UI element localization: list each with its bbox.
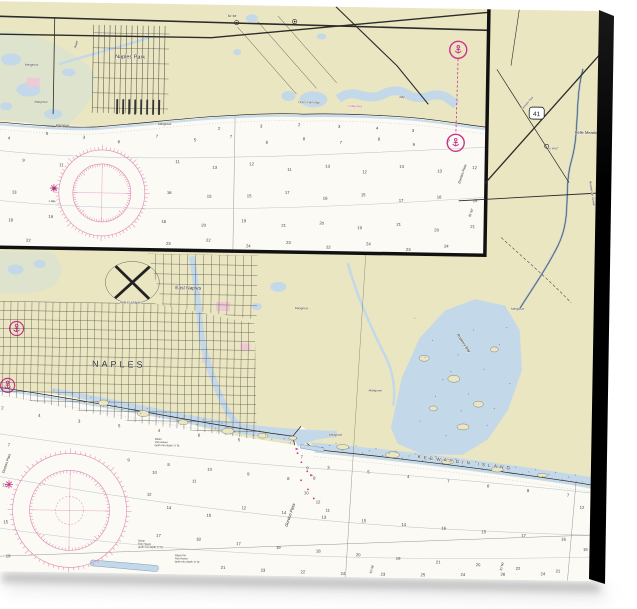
- sounding: 23: [381, 572, 386, 577]
- sounding: 22: [326, 245, 331, 250]
- sounding: 19: [396, 556, 401, 561]
- sounding: 24: [444, 244, 449, 249]
- label-east-naples: East Naples: [175, 285, 202, 291]
- sounding: 18: [196, 537, 201, 542]
- sounding: 11: [2, 482, 7, 487]
- sounding: 10: [304, 490, 309, 495]
- islet: [429, 406, 437, 411]
- sounding: 10: [152, 470, 157, 475]
- sounding: 14: [167, 505, 172, 510]
- urban-patch: [240, 343, 250, 350]
- sounding: 17: [399, 198, 404, 203]
- label-mangrove-2: Mangrove: [34, 100, 48, 104]
- sounding: 13: [325, 164, 330, 169]
- label-outer-clam-bay: Outer Clam Bay: [298, 100, 320, 104]
- label-mangrove-6: Mangrove: [511, 307, 525, 311]
- sounding: 12: [580, 505, 585, 510]
- label-mangrove-7: Mangrove: [369, 388, 383, 392]
- dock: [128, 99, 130, 114]
- sounding: 17: [156, 533, 161, 538]
- sounding: 24: [341, 571, 346, 576]
- canvas-print-product-photo: 41: [0, 0, 637, 609]
- islet: [337, 444, 349, 449]
- route-41-label: 41: [533, 111, 541, 118]
- sounding: 20: [201, 223, 206, 228]
- sounding: 19: [276, 545, 281, 550]
- sounding: 21: [556, 568, 561, 573]
- islet: [448, 375, 460, 382]
- sounding: 23: [261, 568, 266, 573]
- sounding: 16: [561, 537, 566, 542]
- sounding: 18: [8, 217, 13, 222]
- islet: [490, 347, 498, 352]
- sounding: 25: [421, 572, 426, 577]
- sounding: 10: [207, 467, 212, 472]
- label-bay: Bay: [399, 95, 405, 99]
- sounding: 20: [476, 562, 481, 567]
- sounding: 22: [301, 569, 306, 574]
- sounding: 15: [207, 194, 212, 199]
- label-naples-airport: NAPLES AIRPORT: [120, 301, 142, 304]
- sounding: 15: [52, 186, 57, 191]
- sounding: 15: [361, 192, 366, 197]
- sounding: 24: [461, 572, 466, 577]
- sounding: 12: [242, 505, 247, 510]
- sounding: 16: [323, 196, 328, 201]
- islet: [473, 401, 483, 407]
- sounding: 18: [161, 219, 166, 224]
- sounding: 20: [319, 221, 324, 226]
- urban-patch: [27, 78, 40, 87]
- label-mangrove-3: Mangrove: [56, 123, 70, 127]
- dock: [116, 99, 118, 114]
- canvas-print-face: 41: [0, 1, 600, 581]
- label-naples-park: Naples Park: [115, 54, 145, 61]
- sounding: 14: [399, 164, 404, 169]
- label-mangrove-8: Mangrove: [329, 433, 343, 437]
- islet: [137, 411, 149, 417]
- sounding: 11: [192, 478, 197, 483]
- islet: [222, 428, 234, 434]
- dock: [122, 99, 124, 114]
- islet: [385, 452, 399, 458]
- label-cable-area: Cable Area: [348, 104, 362, 108]
- sounding: 12: [316, 500, 321, 505]
- sounding: 21: [281, 223, 286, 228]
- sounding: 20: [434, 227, 439, 232]
- sounding: 14: [282, 510, 287, 515]
- sounding: 21: [396, 222, 401, 227]
- sounding: 19: [357, 225, 362, 230]
- label-naples: NAPLES: [92, 359, 146, 370]
- sounding: 24: [366, 241, 371, 246]
- sounding: 11: [59, 162, 64, 167]
- sounding: 13: [321, 515, 326, 520]
- sounding: 23: [286, 240, 291, 245]
- label-mangrove-4: Mangrove: [158, 122, 172, 126]
- islet: [419, 355, 429, 361]
- sounding: 12: [249, 161, 254, 166]
- islet: [457, 424, 469, 430]
- islet: [258, 433, 268, 438]
- label-mangrove-1: Mangrove: [25, 63, 39, 67]
- urban-patch: [216, 302, 230, 311]
- sounding: 16: [167, 190, 172, 195]
- sounding: 19: [6, 553, 11, 558]
- sounding: 24: [541, 571, 546, 576]
- islet: [178, 420, 188, 425]
- sounding: 12: [147, 492, 152, 497]
- sounding: 16: [437, 194, 442, 199]
- sounding: 18: [316, 549, 321, 554]
- sounding: 15: [206, 513, 211, 518]
- sounding: 19: [583, 547, 588, 552]
- sounding: 20: [356, 552, 361, 557]
- sounding: 15: [473, 198, 478, 203]
- sounding: 14: [401, 522, 406, 527]
- sounding: 13: [437, 168, 442, 173]
- sounding: 13: [12, 189, 17, 194]
- sounding: 26: [501, 572, 506, 577]
- sounding: 15: [3, 519, 8, 524]
- sounding: 17: [521, 533, 526, 538]
- sounding: 22: [26, 238, 31, 243]
- sounding: 12: [362, 169, 367, 174]
- sounding: 23: [406, 247, 411, 252]
- sounding: 12: [472, 165, 477, 170]
- sounding: 19: [48, 214, 53, 219]
- sounding: 17: [236, 541, 241, 546]
- sounding: 11: [287, 167, 292, 172]
- islet: [98, 400, 108, 406]
- sounding: 24: [246, 243, 251, 248]
- sounding: 21: [470, 224, 475, 229]
- sounding: 15: [481, 529, 486, 534]
- label-belle-meade: Belle Meade: [575, 130, 598, 135]
- sounding: 16: [441, 526, 446, 531]
- sounding: 21: [221, 565, 226, 570]
- sounding: 19: [241, 218, 246, 223]
- label-mangrove-5: Mangrove: [295, 306, 309, 310]
- sounding: 23: [166, 241, 171, 246]
- islet: [289, 436, 297, 440]
- route-41-shield: 41: [529, 107, 544, 119]
- label-lon-81-48-inset: 81°48': [228, 14, 237, 18]
- sounding: 22: [516, 566, 521, 571]
- sounding: 17: [285, 190, 290, 195]
- sounding: 15: [247, 193, 252, 198]
- sounding: 11: [175, 159, 180, 164]
- sounding: 21: [436, 560, 441, 565]
- label-one-mile: 1 Mile: [49, 199, 57, 203]
- label-to-mast: TO MAST: [548, 147, 560, 150]
- dock: [134, 99, 136, 114]
- sounding: 13: [212, 165, 217, 170]
- sounding: 11: [326, 508, 331, 513]
- nautical-chart-svg: 41: [0, 1, 600, 581]
- sounding: 15: [361, 518, 366, 523]
- sounding: 22: [206, 238, 211, 243]
